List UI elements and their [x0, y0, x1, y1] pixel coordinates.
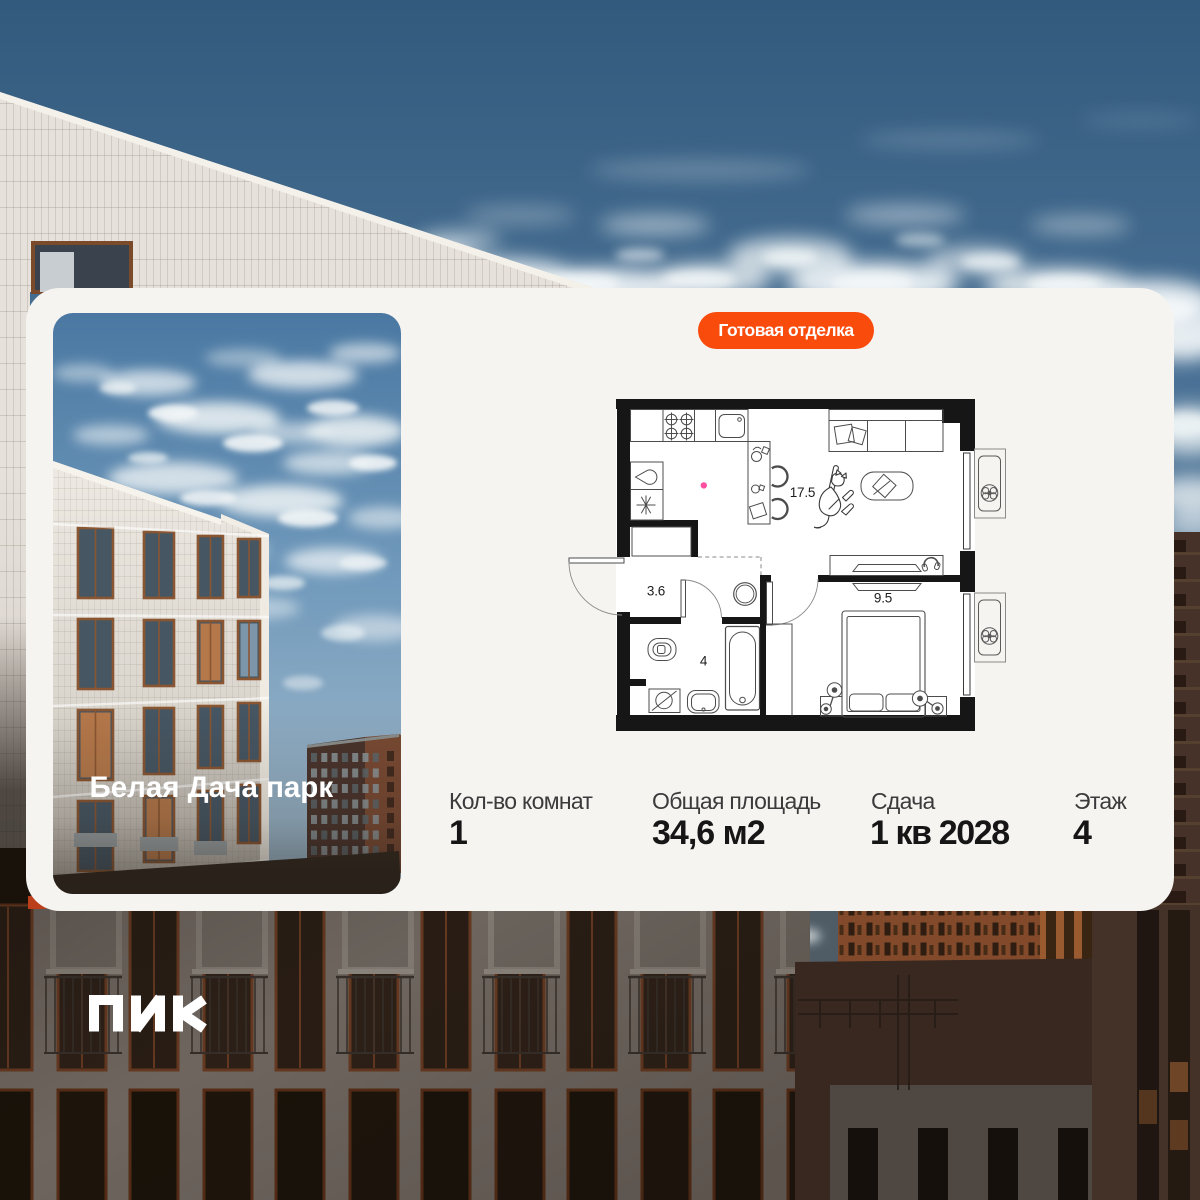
svg-text:17.5: 17.5: [790, 485, 815, 500]
svg-text:3.6: 3.6: [647, 584, 665, 599]
svg-text:Белая Дача парк: Белая Дача парк: [90, 771, 334, 804]
svg-text:9.5: 9.5: [874, 591, 892, 606]
svg-text:4: 4: [700, 654, 708, 669]
